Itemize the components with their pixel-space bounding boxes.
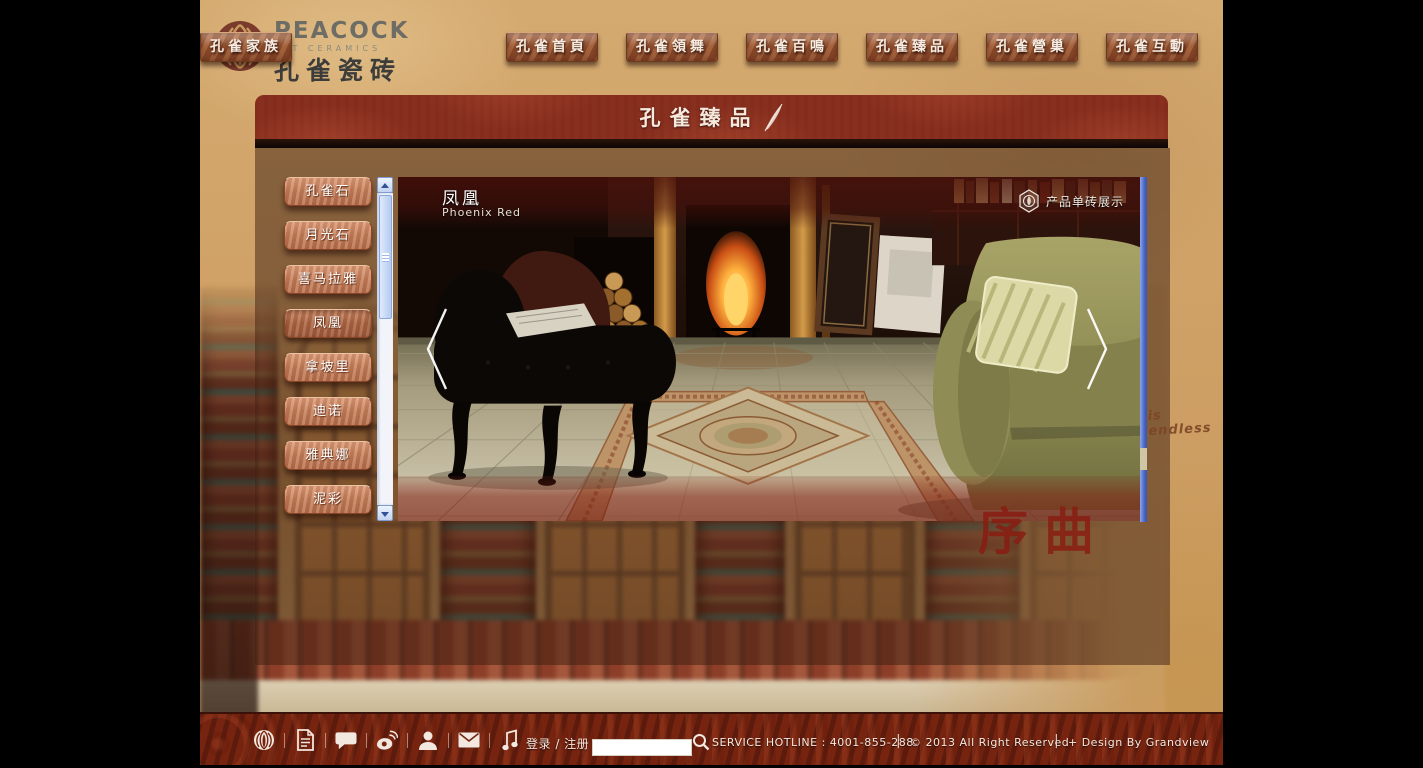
nav-stores-button[interactable]: 孔雀營巢 (986, 32, 1078, 62)
search-icon[interactable] (692, 733, 710, 751)
icon-divider (366, 733, 367, 748)
scrollbar-track[interactable] (377, 193, 393, 505)
sidebar-item-napoli[interactable]: 拿坡里 (284, 353, 372, 382)
weibo-icon[interactable] (376, 728, 398, 752)
product-display-badge: 产品单砖展示 (1018, 189, 1124, 213)
feather-icon (762, 102, 784, 132)
brand-name: PEACOCK (274, 20, 410, 43)
icon-divider (407, 733, 408, 748)
copyright: © 2013 All Right Reserved (910, 736, 1069, 749)
background-calligraphy: 序曲 (978, 492, 1110, 564)
nav-lead-button[interactable]: 孔雀領舞 (626, 32, 718, 62)
music-icon[interactable] (499, 728, 521, 752)
scroll-up-button[interactable] (377, 177, 393, 193)
document-icon[interactable] (294, 728, 316, 752)
page-title: 孔雀臻品 (640, 102, 760, 132)
icon-divider (489, 733, 490, 748)
carousel-prev-button[interactable] (424, 305, 450, 393)
banner-divider (255, 139, 1168, 148)
sidebar-item-athena[interactable]: 雅典娜 (284, 441, 372, 470)
footer-social-icons (244, 728, 530, 752)
scrollbar-thumb[interactable] (379, 195, 392, 319)
script-note: is endless (1147, 405, 1223, 439)
product-name-en: Phoenix Red (442, 206, 521, 219)
mail-icon[interactable] (458, 728, 480, 752)
product-image-viewer: 凤凰 Phoenix Red 产品单砖展示 (398, 177, 1140, 521)
scroll-down-button[interactable] (377, 505, 393, 521)
page-banner: 孔雀臻品 (255, 95, 1168, 139)
image-scrollbar[interactable] (1140, 177, 1147, 522)
badge-label: 产品单砖展示 (1046, 193, 1124, 210)
image-scrollbar-thumb[interactable] (1140, 448, 1147, 470)
peacock-logo-icon[interactable] (253, 728, 275, 752)
sidebar-scrollbar[interactable] (377, 177, 393, 521)
design-credit-link[interactable]: + Design By Grandview (1068, 736, 1209, 749)
nav-news-button[interactable]: 孔雀百鳴 (746, 32, 838, 62)
footer: 登录 / 注册 SERVICE HOTLINE : 4001-855-288 |… (200, 712, 1223, 768)
hexagon-peacock-icon (1018, 189, 1040, 213)
content-panel: 孔雀石 月光石 喜马拉雅 凤凰 拿坡里 迪诺 雅典娜 泥彩 (255, 148, 1170, 665)
nav-family-button[interactable]: 孔雀家族 (200, 32, 292, 62)
page: 序曲 is endless PEACOCK ART CERAMICS 孔雀瓷砖 (200, 0, 1223, 768)
footer-divider: | (1054, 733, 1059, 749)
sidebar-item-dino[interactable]: 迪诺 (284, 397, 372, 426)
building-left-shadow (200, 286, 258, 716)
icon-divider (325, 733, 326, 748)
icon-divider (448, 733, 449, 748)
login-register-link[interactable]: 登录 / 注册 (526, 735, 589, 752)
brand-text: PEACOCK ART CERAMICS 孔雀瓷砖 (274, 20, 410, 83)
sidebar-item-claycolor[interactable]: 泥彩 (284, 485, 372, 514)
nav-home-button[interactable]: 孔雀首頁 (506, 32, 598, 62)
footer-divider: | (896, 733, 901, 749)
header: PEACOCK ART CERAMICS 孔雀瓷砖 孔雀首頁 孔雀領舞 孔雀百鳴… (200, 0, 1223, 95)
nav-interact-button[interactable]: 孔雀互動 (1106, 32, 1198, 62)
brand-chinese-name: 孔雀瓷砖 (274, 58, 410, 83)
user-icon[interactable] (417, 728, 439, 752)
brand-subtitle: ART CERAMICS (274, 45, 410, 53)
chat-icon[interactable] (335, 728, 357, 752)
sidebar-item-phoenix[interactable]: 凤凰 (284, 309, 372, 338)
search-input[interactable] (592, 739, 692, 756)
sidebar-item-himalaya[interactable]: 喜马拉雅 (284, 265, 372, 294)
carousel-next-button[interactable] (1084, 305, 1110, 393)
search-box (592, 735, 692, 756)
nav-products-button[interactable]: 孔雀臻品 (866, 32, 958, 62)
sidebar-item-malachite[interactable]: 孔雀石 (284, 177, 372, 206)
icon-divider (284, 733, 285, 748)
sidebar-item-moonstone[interactable]: 月光石 (284, 221, 372, 250)
service-hotline: SERVICE HOTLINE : 4001-855-288 (712, 736, 914, 749)
